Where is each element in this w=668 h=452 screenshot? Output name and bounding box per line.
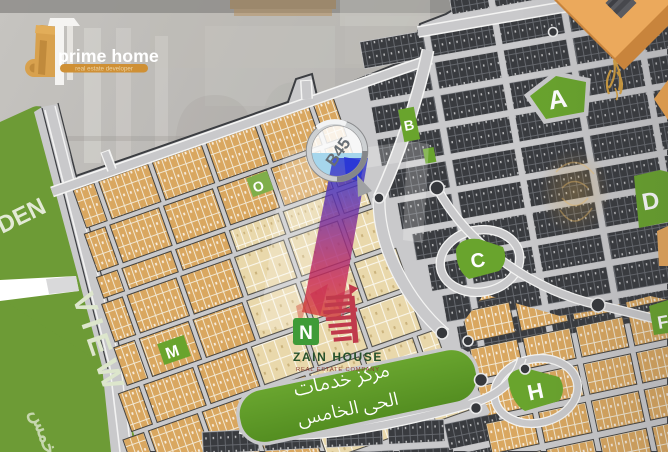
svg-text:REAL ESTATE COMPANY: REAL ESTATE COMPANY — [296, 367, 380, 373]
svg-text:prime home: prime home — [58, 46, 159, 66]
svg-text:N: N — [299, 323, 313, 344]
svg-text:real estate developer: real estate developer — [75, 66, 133, 73]
svg-text:ZAIN HOUSE: ZAIN HOUSE — [293, 350, 383, 364]
